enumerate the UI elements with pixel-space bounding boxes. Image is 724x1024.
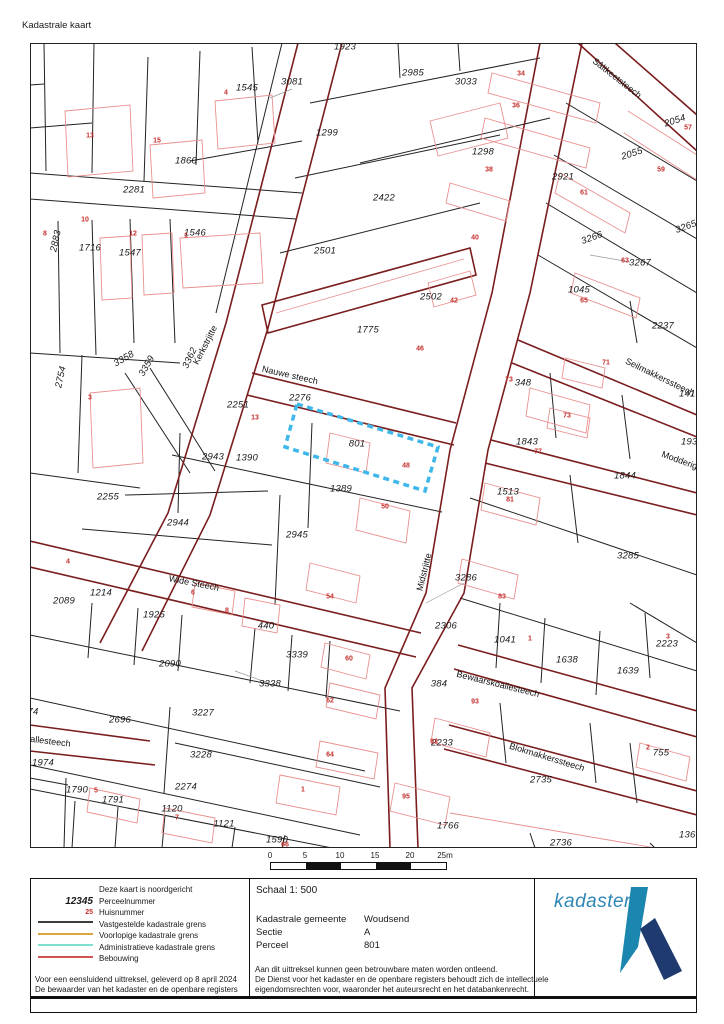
parcel-boundary-lines bbox=[30, 43, 697, 848]
info-label: Perceel bbox=[256, 940, 288, 951]
legend-line-sample bbox=[38, 921, 93, 923]
legend-label: Huisnummer bbox=[99, 908, 144, 917]
scale-tick-label: 0 bbox=[268, 851, 272, 860]
scale-bar-segment bbox=[341, 863, 376, 869]
scale-bar-graphic bbox=[270, 862, 447, 870]
panel-divider-1 bbox=[249, 879, 250, 997]
legend-label: Vastgestelde kadastrale grens bbox=[99, 920, 206, 929]
scale-bar-segment bbox=[271, 863, 306, 869]
footer-left-line1: Voor een eensluidend uittreksel, gelever… bbox=[35, 975, 245, 984]
legend-items: Deze kaart is noordgericht12345Perceelnu… bbox=[31, 884, 247, 965]
scale-bar-segment bbox=[411, 863, 446, 869]
info-row: Kadastrale gemeenteWoudsend bbox=[256, 914, 516, 927]
legend-line-sample bbox=[38, 944, 93, 946]
info-label: Kadastrale gemeente bbox=[256, 914, 346, 925]
legend-row: 25Huisnummer bbox=[31, 907, 247, 919]
info-value: 801 bbox=[364, 940, 380, 951]
legend-label: Voorlopige kadastrale grens bbox=[99, 931, 198, 940]
legend-line-sample bbox=[38, 933, 93, 935]
legend-label: Administratieve kadastrale grens bbox=[99, 943, 215, 952]
scale-bar-segment bbox=[376, 863, 411, 869]
info-row: SectieA bbox=[256, 927, 516, 940]
legend-row: Deze kaart is noordgericht bbox=[31, 884, 247, 896]
info-row: Perceel801 bbox=[256, 940, 516, 953]
legend-row: Vastgestelde kadastrale grens bbox=[31, 919, 247, 931]
legend-row: 12345Perceelnummer bbox=[31, 896, 247, 908]
scale-tick-label: 5 bbox=[303, 851, 307, 860]
map-info: Schaal 1: 500 Kadastrale gemeenteWoudsen… bbox=[256, 885, 516, 953]
page-title: Kadastrale kaart bbox=[22, 20, 91, 31]
legend-row: Administratieve kadastrale grens bbox=[31, 942, 247, 954]
legend-line-sample bbox=[38, 956, 93, 958]
legend-row: Bebouwing bbox=[31, 953, 247, 965]
legend-row: Voorlopige kadastrale grens bbox=[31, 930, 247, 942]
map-linework bbox=[30, 43, 697, 848]
legend-housenumber-sample: 25 bbox=[85, 909, 93, 916]
kadaster-logo-text: kadaster bbox=[554, 891, 631, 913]
legend-sample: 25 bbox=[31, 907, 93, 916]
info-rows: Kadastrale gemeenteWoudsendSectieAPercee… bbox=[256, 914, 516, 953]
cadastral-map: 1923298530333081154512991298205420552921… bbox=[30, 43, 697, 848]
legend-sample: 12345 bbox=[31, 896, 93, 907]
legend-parcelnumber-sample: 12345 bbox=[65, 896, 93, 907]
legend-sample bbox=[31, 953, 93, 962]
footer-left-line2: De bewaarder van het kadaster en de open… bbox=[35, 985, 245, 994]
legend-label: Bebouwing bbox=[99, 954, 139, 963]
kadaster-logo: kadaster bbox=[536, 879, 696, 996]
logo-diagonal-shape bbox=[640, 918, 682, 980]
legend-sample bbox=[31, 942, 93, 951]
legend-label: Deze kaart is noordgericht bbox=[99, 885, 192, 894]
highlighted-parcel-outline bbox=[285, 404, 438, 491]
scale-tick-label: 10 bbox=[336, 851, 345, 860]
legend-sample bbox=[31, 919, 93, 928]
page: Kadastrale kaart bbox=[0, 0, 724, 1024]
legend-panel: Deze kaart is noordgericht12345Perceelnu… bbox=[30, 878, 697, 1013]
scale-bar-segment bbox=[306, 863, 341, 869]
scale-tick-label: 20 bbox=[406, 851, 415, 860]
panel-thick-rule bbox=[31, 996, 696, 999]
scale-text: Schaal 1: 500 bbox=[256, 885, 516, 896]
info-label: Sectie bbox=[256, 927, 282, 938]
scale-bar-ticks: 0510152025m bbox=[258, 851, 468, 860]
info-value: Woudsend bbox=[364, 914, 409, 925]
scale-tick-label: 15 bbox=[371, 851, 380, 860]
legend-label: Perceelnummer bbox=[99, 897, 155, 906]
scale-tick-label: 25m bbox=[437, 851, 453, 860]
building-outline-lines bbox=[65, 73, 697, 848]
legend-sample bbox=[31, 930, 93, 939]
info-value: A bbox=[364, 927, 370, 938]
scale-bar: 0510152025m bbox=[258, 851, 468, 873]
